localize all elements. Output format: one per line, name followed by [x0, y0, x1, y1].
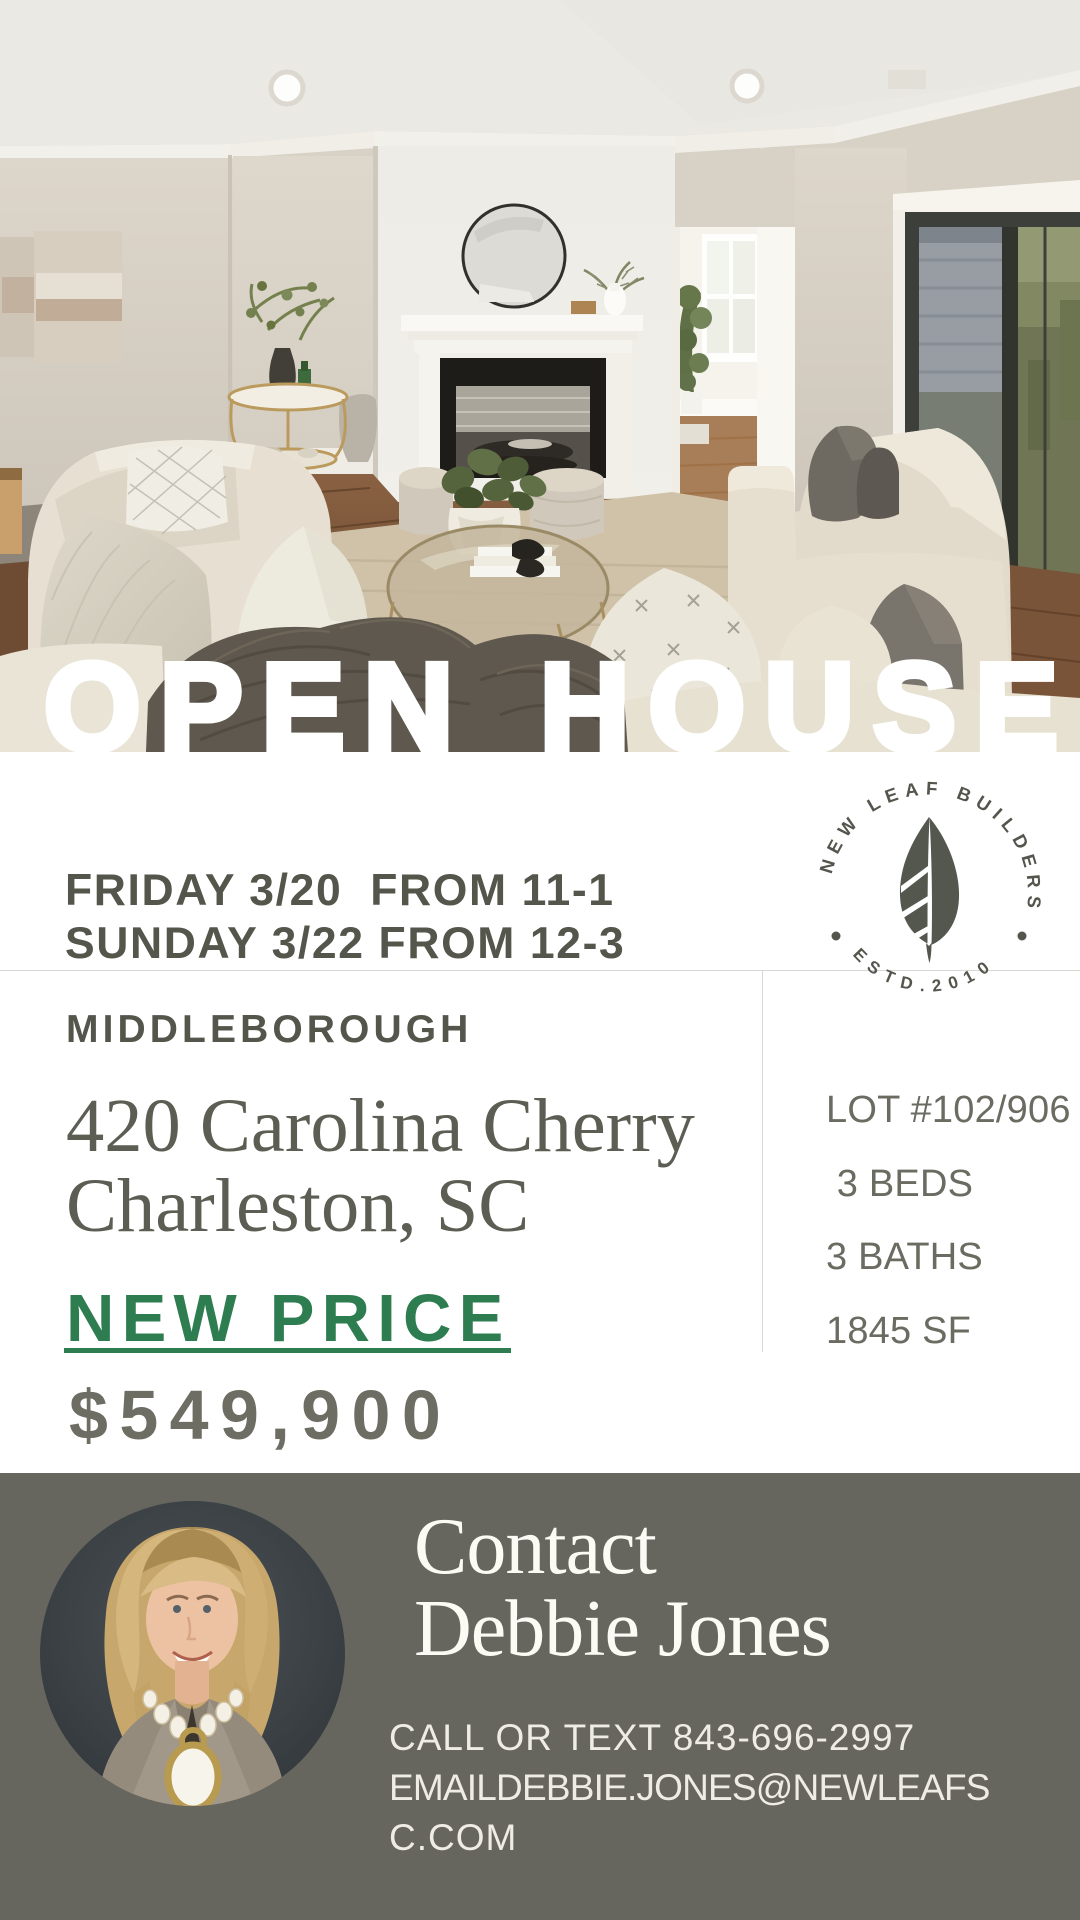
svg-text:ESTD.2010: ESTD.2010: [849, 944, 999, 995]
